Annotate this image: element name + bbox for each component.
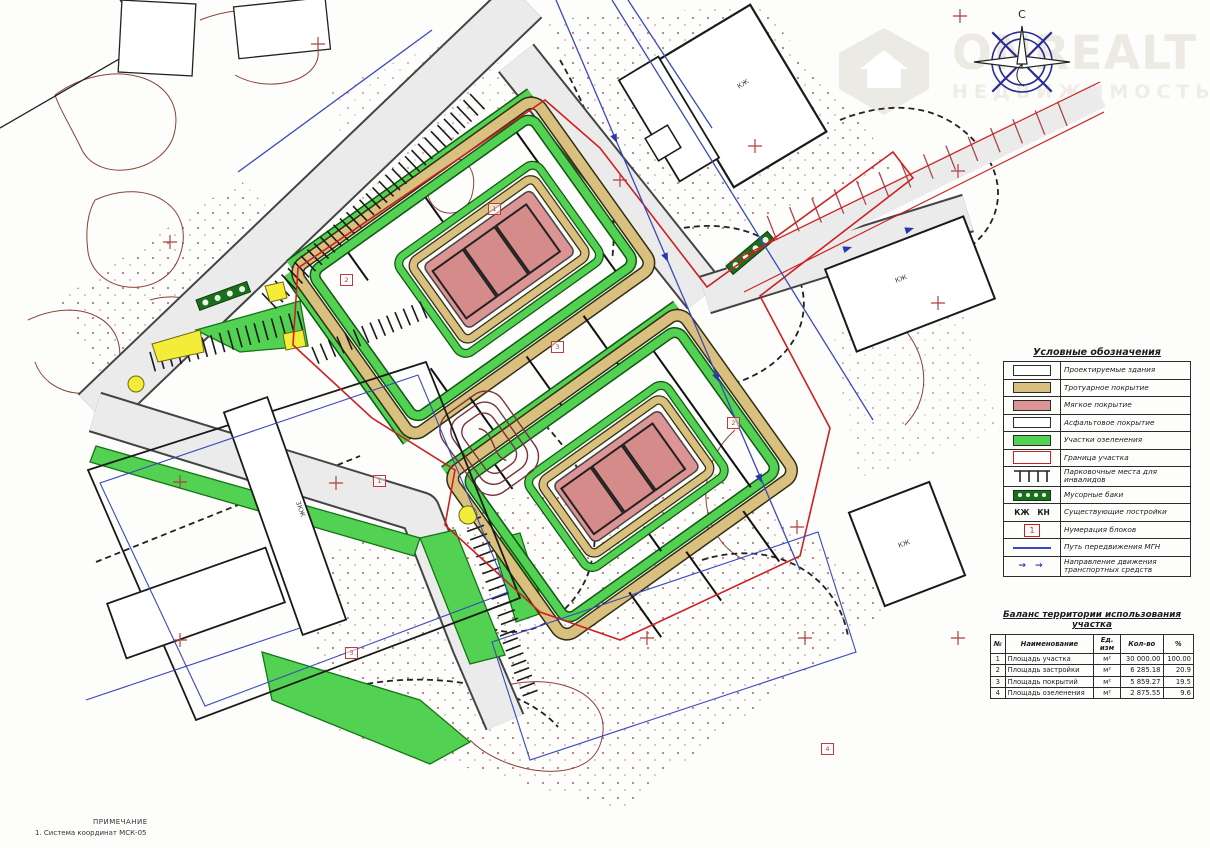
- note-block: ПРИМЕЧАНИЕ 1. Система координат МСК-05: [35, 818, 148, 837]
- table-row: 1 Площадь участка м² 30 000.00 100.00: [991, 654, 1194, 665]
- sidewalk-swatch: [1013, 382, 1051, 393]
- block-marker: 4: [821, 743, 834, 755]
- table-row: 4 Площадь озеленения м² 2 875.55 9.6: [991, 687, 1194, 698]
- greenery-swatch: [1013, 435, 1051, 446]
- legend-panel: Условные обозначения Проектируемые здани…: [1003, 347, 1191, 577]
- balance-table: № Наименование Ед. изм Кол-во % 1 Площад…: [990, 634, 1194, 699]
- block-number-symbol: 1: [1024, 524, 1040, 537]
- legend-row: Путь передвижения МГН: [1004, 538, 1190, 556]
- site-plan-page: ONREALT НЕДВИЖИМОСТЬ: [0, 0, 1210, 848]
- table-row: 3 Площадь покрытий м² 5 859.27 19.5: [991, 676, 1194, 687]
- legend-row: Мягкое покрытие: [1004, 396, 1190, 414]
- block-marker: 1: [488, 203, 501, 215]
- legend-row: Парковочные места для инвалидов: [1004, 466, 1190, 486]
- trash-bins-swatch: [1013, 490, 1051, 501]
- block-marker: 2: [727, 417, 740, 429]
- boundary-swatch: [1013, 451, 1051, 464]
- balance-panel: Баланс территории использования участка …: [990, 610, 1194, 699]
- legend-row: Граница участка: [1004, 449, 1190, 467]
- block-marker: 1: [373, 475, 386, 487]
- legend-row: Участки озеленения: [1004, 431, 1190, 449]
- table-row: 2 Площадь застройки м² 6 285.18 20.9: [991, 665, 1194, 676]
- compass-north-label: С: [1018, 8, 1026, 21]
- legend-row: → → Направление движения транспортных ср…: [1004, 556, 1190, 576]
- legend-row: КЖ КН Существующие постройки: [1004, 503, 1190, 521]
- block-marker: 2: [340, 274, 353, 286]
- block-marker: 3: [345, 647, 358, 659]
- legend-row: Мусорные баки: [1004, 486, 1190, 504]
- legend-row: Тротуарное покрытие: [1004, 379, 1190, 397]
- proposed-buildings-swatch: [1013, 365, 1051, 376]
- traffic-direction-symbol: → →: [1018, 561, 1045, 571]
- block-marker: 3: [551, 341, 564, 353]
- asphalt-swatch: [1013, 417, 1051, 428]
- note-heading: ПРИМЕЧАНИЕ: [35, 818, 148, 826]
- soft-cover-swatch: [1013, 400, 1051, 411]
- legend-row: Проектируемые здания: [1004, 362, 1190, 379]
- existing-buildings-symbol: КЖ КН: [1014, 508, 1050, 517]
- legend-row: 1 Нумерация блоков: [1004, 521, 1190, 539]
- disabled-parking-icon: [1012, 469, 1052, 484]
- field-lines: [0, 0, 330, 128]
- legend-table: Проектируемые здания Тротуарное покрытие…: [1003, 361, 1191, 577]
- note-line: 1. Система координат МСК-05: [35, 829, 148, 837]
- legend-row: Асфальтовое покрытие: [1004, 414, 1190, 432]
- compass-rose: С: [974, 8, 1070, 92]
- mgn-path-symbol: [1013, 547, 1051, 549]
- legend-title: Условные обозначения: [1003, 347, 1191, 358]
- balance-title: Баланс территории использования участка: [990, 610, 1194, 630]
